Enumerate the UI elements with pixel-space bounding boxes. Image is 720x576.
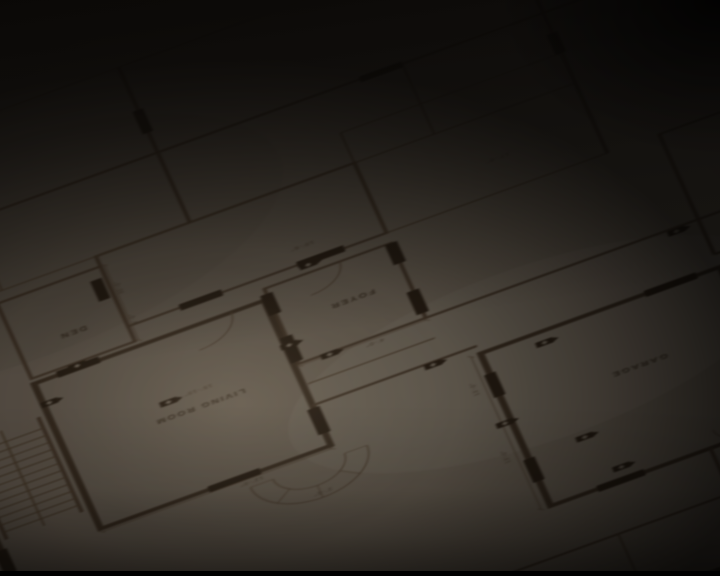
photo-of-floor-plan: LIVING ROOM DEN FOYER GARAGE 13'-0" 13'-… xyxy=(0,0,720,576)
floor-plan-drawing: LIVING ROOM DEN FOYER GARAGE 13'-0" 13'-… xyxy=(0,0,720,576)
letterbox-bar xyxy=(0,571,720,576)
